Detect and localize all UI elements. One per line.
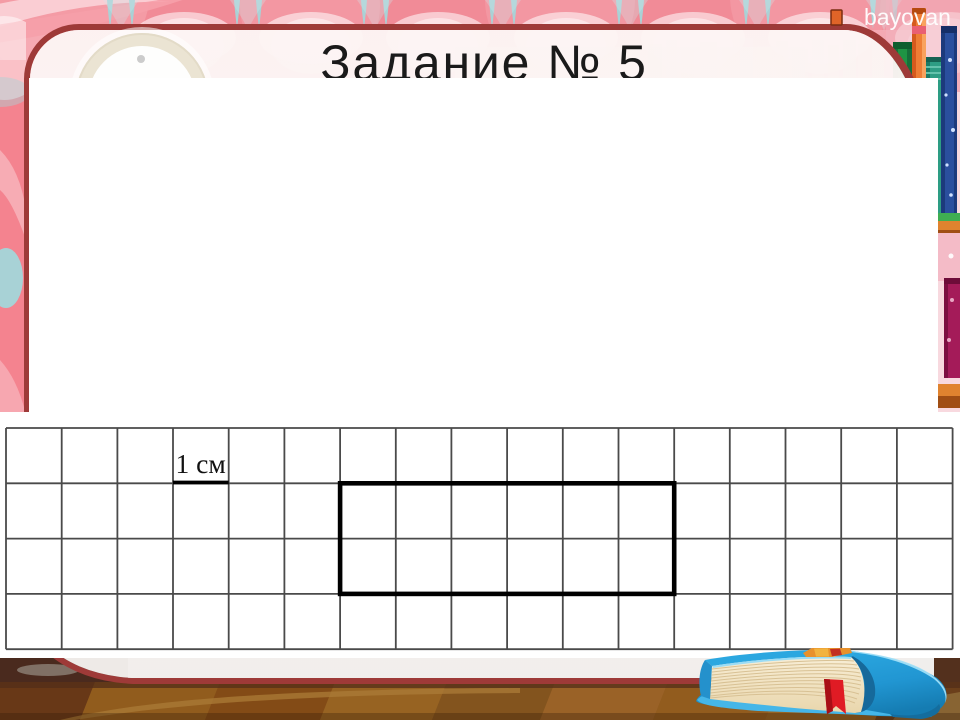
svg-text:bayovan: bayovan	[864, 4, 951, 30]
svg-text:1 см: 1 см	[176, 448, 226, 479]
